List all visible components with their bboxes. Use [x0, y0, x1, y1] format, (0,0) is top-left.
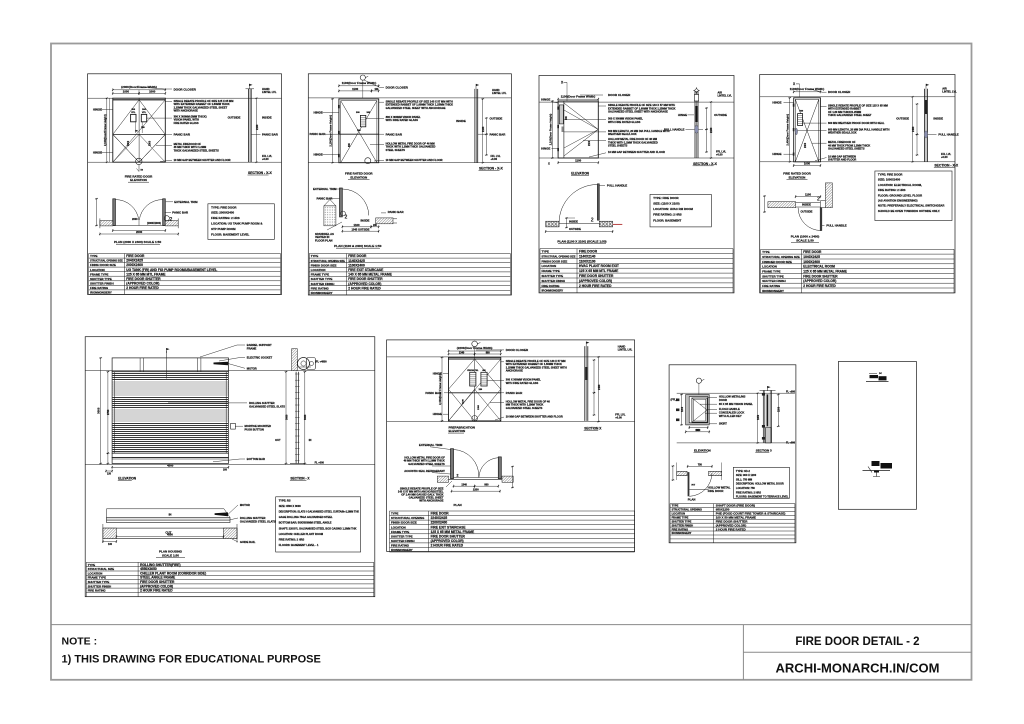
- svg-text:ANCHORAGE: ANCHORAGE: [506, 369, 523, 373]
- svg-text:3000: 3000: [97, 407, 101, 414]
- svg-text:2,400(Door Frame Height): 2,400(Door Frame Height): [438, 373, 442, 405]
- svg-text:+0.00: +0.00: [941, 155, 948, 159]
- svg-text:SECTION - X-X: SECTION - X-X: [693, 162, 717, 166]
- svg-text:FIRE RATING: 2 HRS: FIRE RATING: 2 HRS: [736, 490, 761, 494]
- svg-text:1100: 1100: [805, 193, 812, 197]
- svg-text:MOTOR: MOTOR: [240, 503, 250, 507]
- svg-text:1345 OUTSIDE: 1345 OUTSIDE: [351, 227, 369, 231]
- svg-text:1100: 1100: [463, 398, 465, 404]
- svg-text:(FL +4800: (FL +4800: [315, 360, 327, 363]
- svg-text:2040X2425: 2040X2425: [126, 259, 143, 263]
- svg-text:PUSH BUTTON: PUSH BUTTON: [245, 427, 264, 431]
- svg-text:FIRE RATING: FIRE RATING: [90, 286, 109, 290]
- svg-text:LOCATION: 750: LOCATION: 750: [736, 486, 755, 490]
- svg-text:SCALE 1:50: SCALE 1:50: [162, 553, 179, 557]
- svg-text:GALVANIZED STEEL SHEETS: GALVANIZED STEEL SHEETS: [408, 462, 445, 466]
- svg-text:NOTE :: NOTE :: [62, 636, 98, 648]
- svg-text:ELECTRIC SOCKET: ELECTRIC SOCKET: [247, 356, 273, 360]
- svg-text:SECTION X: SECTION X: [584, 427, 602, 431]
- svg-text:FRAME TYPE: FRAME TYPE: [672, 516, 689, 520]
- svg-text:10 MM GAP BETWEEN SHUTTER AND: 10 MM GAP BETWEEN SHUTTER AND FLOOR: [506, 415, 563, 419]
- svg-text:FIRE RATED GLASS: FIRE RATED GLASS: [174, 121, 199, 125]
- svg-text:ROLLING SHUTTER: ROLLING SHUTTER: [249, 401, 275, 405]
- svg-text:FINISH DOOR SIZE: FINISH DOOR SIZE: [391, 521, 417, 525]
- svg-text:IN: IN: [169, 513, 172, 517]
- svg-text:125 X 65 MM MTL FRAME: 125 X 65 MM MTL FRAME: [579, 269, 619, 273]
- svg-text:1000: 1000: [804, 162, 811, 166]
- svg-text:FIRE EXIT STAIRCASE: FIRE EXIT STAIRCASE: [431, 525, 467, 529]
- svg-text:HINGE: HINGE: [772, 101, 781, 105]
- svg-text:PANIC BAR: PANIC BAR: [490, 132, 507, 136]
- svg-text:X: X: [548, 162, 550, 166]
- svg-text:SECTION - X: SECTION - X: [290, 477, 310, 481]
- svg-text:BOTTOM BAR: 50X50X6MM STEEL AN: BOTTOM BAR: 50X50X6MM STEEL ANGLE: [279, 521, 332, 525]
- svg-text:IRONMONGERY: IRONMONGERY: [542, 289, 564, 293]
- svg-text:TYPE: FIRE DOOR: TYPE: FIRE DOOR: [878, 173, 903, 177]
- svg-text:SKIRT: SKIRT: [719, 422, 727, 426]
- svg-text:PULL HANDLE: PULL HANDLE: [607, 184, 627, 188]
- svg-text:LOCATION: UG TANK PUMP ROOM &: LOCATION: UG TANK PUMP ROOM &: [211, 222, 262, 226]
- svg-text:BARREL SUPPORT: BARREL SUPPORT: [247, 343, 272, 347]
- svg-text:600 MM WEATHER PROOF DOOR WITH: 600 MM WEATHER PROOF DOOR WITH SEAL: [828, 121, 885, 125]
- svg-text:2 HOUR FIRE RATED: 2 HOUR FIRE RATED: [431, 544, 464, 548]
- svg-text:STEEL SHEETS: STEEL SHEETS: [608, 144, 628, 148]
- svg-text:OUTSIDE: OUTSIDE: [714, 113, 727, 117]
- svg-text:PANIC BAR: PANIC BAR: [506, 391, 523, 395]
- svg-text:WITH ANCHORAGE: WITH ANCHORAGE: [419, 499, 444, 503]
- svg-text:(AS AVIATION ENGINEERING): (AS AVIATION ENGINEERING): [878, 199, 918, 203]
- svg-text:1200: 1200: [682, 406, 684, 412]
- svg-text:2 HOUR FIRE RATED: 2 HOUR FIRE RATED: [803, 284, 836, 288]
- svg-text:FIRE RATING: FIRE RATING: [762, 284, 781, 288]
- svg-text:2,100(Door/Frame Height): 2,100(Door/Frame Height): [103, 114, 107, 146]
- svg-text:SHUTTER FINISH: SHUTTER FINISH: [672, 523, 694, 527]
- svg-text:GAGE ROLLING 75GA GALVANISED S: GAGE ROLLING 75GA GALVANISED STEEL: [279, 515, 333, 519]
- svg-text:1100(Door Frame Width): 1100(Door Frame Width): [342, 81, 376, 85]
- svg-text:IRONMONGERY: IRONMONGERY: [672, 531, 692, 535]
- svg-text:2000: 2000: [136, 230, 143, 234]
- svg-text:SHUTTER TYPE: SHUTTER TYPE: [311, 277, 333, 281]
- svg-text:SHUTTER FINISH: SHUTTER FINISH: [311, 282, 335, 286]
- svg-text:1) THIS DRAWING FOR EDUCATIONA: 1) THIS DRAWING FOR EDUCATIONAL PURPOSE: [62, 654, 321, 666]
- svg-text:PANIC BAR: PANIC BAR: [386, 132, 403, 136]
- svg-text:THICK GALVANIZED STEEL SHEET: THICK GALVANIZED STEEL SHEET: [828, 113, 872, 117]
- svg-text:FIRE RATING: FIRE RATING: [672, 527, 688, 531]
- svg-text:DESCRIPTION: SLATS / GALVANISE: DESCRIPTION: SLATS / GALVANISED STEEL CU…: [279, 510, 360, 514]
- svg-text:2240X2425: 2240X2425: [431, 516, 448, 520]
- svg-text:STRUCTURAL OPENING: STRUCTURAL OPENING: [672, 508, 702, 512]
- svg-text:(APPROVED COLOR): (APPROVED COLOR): [803, 279, 836, 283]
- svg-text:ELEVATION: ELEVATION: [571, 171, 589, 175]
- svg-text:200: 200: [223, 469, 228, 472]
- svg-text:HINGE: HINGE: [678, 113, 687, 117]
- svg-text:PANIC BAR: PANIC BAR: [262, 132, 279, 136]
- svg-text:TYPE: TYPE: [311, 254, 319, 258]
- svg-text:FIRE DOOR SHUTTER: FIRE DOOR SHUTTER: [579, 274, 614, 278]
- svg-text:DOOR CLOSER: DOOR CLOSER: [386, 86, 409, 90]
- svg-text:GALVANIZED STEEL SHEET WITH AN: GALVANIZED STEEL SHEET WITH ANCHORAGE: [386, 106, 446, 110]
- svg-text:FRAME TYPE: FRAME TYPE: [391, 530, 409, 534]
- svg-text:FINISH DOOR SIZE: FINISH DOOR SIZE: [542, 259, 568, 263]
- svg-text:SIZE: 2000X2400: SIZE: 2000X2400: [211, 211, 234, 215]
- svg-text:+0.00: +0.00: [262, 157, 269, 161]
- svg-text:860: 860: [484, 483, 489, 486]
- svg-text:SECTION - X-X: SECTION - X-X: [248, 171, 272, 175]
- svg-text:INSIDE: INSIDE: [933, 117, 943, 121]
- svg-text:(1000X1000): (1000X1000): [147, 222, 161, 225]
- svg-text:1100(Door Frame Width): 1100(Door Frame Width): [790, 87, 824, 91]
- svg-text:FIRE DOOR SHUTTER: FIRE DOOR SHUTTER: [803, 274, 838, 278]
- svg-text:GALVANIZED STEEL SHEET WITH AN: GALVANIZED STEEL SHEET WITH ANCHORAGE: [608, 110, 668, 114]
- svg-text:1100: 1100: [354, 223, 361, 227]
- svg-text:GUIDE RAIL: GUIDE RAIL: [240, 540, 256, 544]
- svg-text:+0.00: +0.00: [716, 152, 723, 156]
- svg-text:VPL: VPL: [131, 112, 136, 114]
- svg-text:EXTERNAL TRIM: EXTERNAL TRIM: [419, 443, 443, 447]
- svg-text:TYPE: FIRE DOOR: TYPE: FIRE DOOR: [653, 196, 679, 200]
- svg-text:2: 2: [817, 197, 820, 203]
- svg-text:FL +000: FL +000: [315, 461, 325, 464]
- svg-text:TYPE: TYPE: [672, 504, 679, 508]
- svg-text:OUT: OUT: [275, 438, 281, 442]
- svg-text:FRAME TYPE: FRAME TYPE: [311, 273, 329, 277]
- svg-text:2000X2400: 2000X2400: [126, 263, 143, 267]
- svg-text:HVAC PLANT ROOM EXIT: HVAC PLANT ROOM EXIT: [579, 264, 619, 268]
- svg-text:ARCHI-MONARCH.IN/COM: ARCHI-MONARCH.IN/COM: [776, 661, 940, 676]
- svg-text:2,100(Door Frame Height): 2,100(Door Frame Height): [548, 114, 552, 146]
- svg-text:1100X2100: 1100X2100: [579, 259, 596, 263]
- svg-text:TYPE: TYPE: [90, 254, 98, 258]
- svg-text:2 HOUR FIRE RATED: 2 HOUR FIRE RATED: [348, 286, 381, 290]
- svg-text:CONCEALED LOCK: CONCEALED LOCK: [719, 411, 744, 415]
- svg-text:2700: 2700: [107, 409, 110, 415]
- svg-text:FIRE DOOR: FIRE DOOR: [126, 254, 145, 258]
- svg-text:PANIC BAR: PANIC BAR: [388, 210, 405, 214]
- svg-text:HINGE: HINGE: [93, 150, 102, 154]
- svg-text:SHAFT: 220GYL GALVANISED STEEL: SHAFT: 220GYL GALVANISED STEEL BOX CASIN…: [279, 526, 357, 530]
- svg-text:LOCATION: LOCATION: [762, 265, 777, 269]
- svg-text:(APPROVED COLOR): (APPROVED COLOR): [431, 539, 464, 543]
- svg-text:STEEL SHEETS: STEEL SHEETS: [386, 148, 406, 152]
- svg-text:PULL HANDLE: PULL HANDLE: [826, 224, 846, 228]
- svg-text:125 X 65 MM MTL FRAME: 125 X 65 MM MTL FRAME: [126, 272, 166, 276]
- svg-text:LINTEL LVL: LINTEL LVL: [492, 91, 507, 95]
- svg-text:2100: 2100: [482, 126, 485, 132]
- svg-text:LINTEL LVL: LINTEL LVL: [942, 90, 957, 94]
- svg-text:OUTSIDE: OUTSIDE: [801, 209, 813, 213]
- svg-text:THICK GALVANIZED STEEL SHEETS: THICK GALVANIZED STEEL SHEETS: [174, 148, 220, 152]
- svg-text:FIRE DOOR DETAIL - 2: FIRE DOOR DETAIL - 2: [795, 636, 919, 648]
- svg-text:4500: 4500: [167, 463, 174, 467]
- svg-text:WEATHER SEAL/LOCK: WEATHER SEAL/LOCK: [828, 131, 857, 135]
- svg-text:STRUCTURAL OPENING SIZE: STRUCTURAL OPENING SIZE: [542, 254, 576, 258]
- svg-text:SECTION 3: SECTION 3: [756, 449, 772, 453]
- svg-text:1340: 1340: [461, 483, 467, 486]
- svg-text:SHOULD BE OPEN TOWARDS OUTSIDE: SHOULD BE OPEN TOWARDS OUTSIDE ONLY.: [878, 209, 940, 213]
- svg-text:900: 900: [695, 429, 700, 432]
- svg-text:HINGE: HINGE: [93, 108, 102, 112]
- svg-text:1140X2425: 1140X2425: [348, 259, 365, 263]
- svg-text:(APPROVED COLOR): (APPROVED COLOR): [126, 281, 159, 285]
- svg-text:ELEVATION: ELEVATION: [694, 449, 711, 453]
- svg-text:2100: 2100: [589, 140, 591, 146]
- svg-text:FIRE RATING: 2 HRS: FIRE RATING: 2 HRS: [211, 216, 240, 220]
- svg-text:HINGE: HINGE: [433, 372, 442, 376]
- svg-text:INSIDE: INSIDE: [802, 203, 811, 207]
- svg-text:FIRE RATING: FIRE RATING: [542, 284, 561, 288]
- svg-text:ROLLING SHUTTER: ROLLING SHUTTER: [240, 516, 266, 520]
- svg-text:FIRE RATING: FIRE RATING: [391, 544, 410, 548]
- svg-text:SIZE: 4500 X 3000: SIZE: 4500 X 3000: [279, 504, 302, 508]
- svg-text:SIZE: (1100 X 2100): SIZE: (1100 X 2100): [653, 202, 679, 206]
- svg-text:PANIC BAR: PANIC BAR: [425, 391, 442, 395]
- svg-text:FIRE RATING: FIRE RATING: [311, 286, 330, 290]
- svg-text:FRAME TYPE: FRAME TYPE: [90, 272, 108, 276]
- svg-text:FIRE EXIT STAIRCASE: FIRE EXIT STAIRCASE: [348, 268, 384, 272]
- svg-text:BOTTOM BAR: BOTTOM BAR: [247, 457, 265, 461]
- svg-text:IRONMONGERY: IRONMONGERY: [311, 291, 333, 295]
- svg-text:GALVANIZED STEEL SHEETS: GALVANIZED STEEL SHEETS: [506, 406, 543, 410]
- svg-text:1000: 1000: [123, 90, 130, 94]
- svg-text:MOTOR: MOTOR: [247, 366, 257, 370]
- svg-text:INSIDE: INSIDE: [262, 116, 272, 120]
- svg-text:2: 2: [170, 217, 173, 223]
- svg-text:1140X2140: 1140X2140: [579, 254, 596, 258]
- svg-text:2: 2: [591, 217, 594, 223]
- svg-text:65 X 65 MM VISION PANEL: 65 X 65 MM VISION PANEL: [719, 402, 753, 406]
- svg-text:DOOR CLOSER: DOOR CLOSER: [608, 93, 631, 97]
- svg-text:ELEVATION: ELEVATION: [350, 175, 367, 179]
- svg-text:DOOR CLOSER: DOOR CLOSER: [174, 88, 197, 92]
- svg-text:FIRE RATING: 2 HRS: FIRE RATING: 2 HRS: [279, 538, 305, 542]
- svg-text:PULL HANDLE: PULL HANDLE: [664, 127, 684, 131]
- svg-text:HINGE: HINGE: [772, 152, 781, 156]
- svg-text:STRUCTURAL OPENING: STRUCTURAL OPENING: [391, 516, 425, 520]
- svg-text:PANIC BAR: PANIC BAR: [174, 133, 191, 137]
- svg-text:VPL: VPL: [142, 112, 147, 114]
- svg-text:1200: 1200: [779, 406, 781, 412]
- svg-text:FIRE DOOR SHUTTER: FIRE DOOR SHUTTER: [348, 277, 383, 281]
- svg-text:HINGE: HINGE: [541, 147, 550, 151]
- svg-text:FINISH DOOR SIZE: FINISH DOOR SIZE: [90, 263, 116, 267]
- svg-text:10 MM GAP BETWEEN SHUTTER AND: 10 MM GAP BETWEEN SHUTTER AND FLOOR: [174, 158, 231, 162]
- svg-text:2,400(Door Frame Height): 2,400(Door Frame Height): [786, 114, 790, 146]
- svg-text:LINTEL LVL: LINTEL LVL: [618, 348, 633, 352]
- svg-text:PLAN (1100 X 2100) (SCALE 1:50: PLAN (1100 X 2100) (SCALE 1:50): [557, 239, 606, 243]
- svg-text:ELEVATION: ELEVATION: [130, 178, 147, 182]
- svg-text:HINGE: HINGE: [433, 412, 442, 416]
- svg-text:1340: 1340: [459, 351, 465, 354]
- svg-text:FRAME TYPE: FRAME TYPE: [542, 269, 560, 273]
- svg-text:FIRE DOOR: FIRE DOOR: [708, 489, 724, 493]
- svg-text:2 HOUR FIRE RATED: 2 HOUR FIRE RATED: [126, 286, 159, 290]
- svg-text:OUTSIDE: OUTSIDE: [896, 117, 909, 121]
- svg-text:PLAN: PLAN: [454, 503, 462, 507]
- svg-text:ELEVATION: ELEVATION: [449, 429, 466, 433]
- svg-text:STRUCTURAL OPENING SIZE: STRUCTURAL OPENING SIZE: [311, 259, 345, 263]
- svg-text:SECTION - X-X: SECTION - X-X: [479, 167, 503, 171]
- svg-text:FL +000: FL +000: [786, 442, 796, 445]
- svg-text:LOCATION: LOCATION: [672, 512, 685, 516]
- svg-text:FRAME: FRAME: [247, 346, 257, 350]
- svg-text:DESCRIPTION: HOLLOW METAL DOOR: DESCRIPTION: HOLLOW METAL DOOR: [736, 482, 784, 486]
- svg-text:STRUCTURAL OPENING SIZE: STRUCTURAL OPENING SIZE: [762, 255, 800, 259]
- svg-text:125 X 65 MM METAL FRAME: 125 X 65 MM METAL FRAME: [431, 530, 475, 534]
- svg-text:FLOORS: BASEMENT LEVEL - 1: FLOORS: BASEMENT LEVEL - 1: [279, 543, 319, 547]
- svg-text:UG TANK (FIR) AND FIG PUMP ROO: UG TANK (FIR) AND FIG PUMP ROOMS/BASEMEN…: [126, 268, 217, 272]
- svg-text:1000: 1000: [149, 90, 156, 94]
- svg-text:2400: 2400: [804, 142, 807, 148]
- svg-text:10 MM GAP BETWEEN SHUTTER AND: 10 MM GAP BETWEEN SHUTTER AND FLOOR: [608, 150, 665, 154]
- svg-text:10 MM GAP BETWEEN SHUTTER AND: 10 MM GAP BETWEEN SHUTTER AND FLOOR: [386, 158, 443, 162]
- svg-text:IRONMONGERY: IRONMONGERY: [90, 291, 112, 295]
- svg-text:3000: 3000: [285, 414, 288, 420]
- svg-text:1100X2400: 1100X2400: [348, 263, 365, 267]
- svg-text:FINISH DOOR SIZE: FINISH DOOR SIZE: [311, 263, 337, 267]
- svg-text:HOLLOW METAL/MS: HOLLOW METAL/MS: [719, 395, 746, 399]
- svg-text:+0.00: +0.00: [491, 157, 498, 161]
- svg-text:FRAME TYPE: FRAME TYPE: [762, 270, 780, 274]
- svg-text:WITH FIRE RATED GLASS: WITH FIRE RATED GLASS: [386, 118, 419, 122]
- svg-text:SECTION - X-X: SECTION - X-X: [934, 164, 958, 168]
- svg-text:FIRE DOOR SHUTTER: FIRE DOOR SHUTTER: [126, 277, 161, 281]
- svg-text:LOCATION: CHILLER PLANT ROOM: LOCATION: CHILLER PLANT ROOM: [279, 532, 323, 536]
- svg-text:FLUSH HANDLE: FLUSH HANDLE: [719, 407, 740, 411]
- svg-text:PLAN (2000 X 2400) SCALE 1:50: PLAN (2000 X 2400) SCALE 1:50: [114, 240, 162, 244]
- svg-text:TYPE: SD-2: TYPE: SD-2: [736, 469, 751, 473]
- svg-text:TYPE: TYPE: [762, 250, 770, 254]
- svg-text:ELEVATION: ELEVATION: [118, 477, 136, 481]
- svg-text:LOCATION: LOCATION: [311, 268, 326, 272]
- svg-text:LOCATION: LOCATION: [391, 525, 406, 529]
- svg-text:GALVANISED STEEL SLATS: GALVANISED STEEL SLATS: [249, 404, 285, 408]
- svg-text:1000X2400: 1000X2400: [803, 260, 820, 264]
- svg-text:1100: 1100: [575, 159, 582, 163]
- svg-text:ELEVATION: ELEVATION: [789, 175, 806, 179]
- svg-text:NOTE: PREFERABLY ELECTRICAL: NOTE: PREFERABLY ELECTRICAL SWITCHGEAR: [878, 204, 944, 208]
- svg-text:VISION PNL: VISION PNL: [467, 370, 479, 372]
- svg-text:FIRE DOOR SHUTTER: FIRE DOOR SHUTTER: [431, 534, 466, 538]
- svg-text:OUTSIDE: OUTSIDE: [569, 227, 581, 231]
- svg-text:MORTISE MOUNTED: MORTISE MOUNTED: [245, 424, 272, 428]
- svg-text:SHUTTER TYPE: SHUTTER TYPE: [391, 534, 413, 538]
- svg-text:SHUTTER AND FLOOR: SHUTTER AND FLOOR: [828, 158, 856, 162]
- svg-text:HINGE: HINGE: [314, 110, 323, 114]
- svg-text:LOCATION: LOCATION: [90, 268, 105, 272]
- svg-text:WITH FIRE RATED GLASS: WITH FIRE RATED GLASS: [608, 120, 641, 124]
- svg-text:EXTERNAL TRIM: EXTERNAL TRIM: [313, 187, 337, 191]
- svg-text:HINGE: HINGE: [314, 153, 323, 157]
- svg-text:100: 100: [108, 543, 113, 546]
- svg-text:2400: 2400: [912, 126, 915, 132]
- svg-text:STRUCTURAL OPENING SIZE: STRUCTURAL OPENING SIZE: [90, 259, 123, 263]
- svg-text:LINTEL LVL: LINTEL LVL: [262, 90, 277, 94]
- svg-text:LOCATION: LOCATION: [542, 264, 557, 268]
- svg-text:1000: 1000: [128, 140, 130, 146]
- svg-text:SHUTTER TYPE: SHUTTER TYPE: [672, 519, 692, 523]
- svg-text:1040X2425: 1040X2425: [803, 255, 820, 259]
- svg-text:SHUTTER TYPE: SHUTTER TYPE: [762, 274, 784, 278]
- svg-text:DOOR: DOOR: [719, 398, 727, 402]
- svg-text:140 X 65 MM METAL FRAME: 140 X 65 MM METAL FRAME: [348, 273, 392, 277]
- svg-text:PLAN (1100 & 2400) SCALE 1:50: PLAN (1100 & 2400) SCALE 1:50: [334, 244, 382, 248]
- svg-text:LOCATION: HVAC RM ROOM: LOCATION: HVAC RM ROOM: [653, 207, 693, 211]
- svg-text:WEATHER SEAL/LOCK: WEATHER SEAL/LOCK: [608, 132, 637, 136]
- svg-text:(FFL): (FFL): [671, 398, 677, 401]
- svg-text:2: 2: [345, 215, 348, 221]
- svg-text:TYPE: TYPE: [391, 512, 399, 516]
- svg-text:ELECTRICAL ROOM: ELECTRICAL ROOM: [803, 265, 835, 269]
- svg-text:FIRE DOOR: FIRE DOOR: [579, 250, 598, 254]
- svg-text:+0.00: +0.00: [615, 416, 622, 420]
- svg-text:IRONMONGERY: IRONMONGERY: [391, 548, 413, 552]
- svg-text:125 X 65 MM METAL FRAME: 125 X 65 MM METAL FRAME: [803, 270, 847, 274]
- svg-text:(APPROVED COLOR): (APPROVED COLOR): [579, 279, 612, 283]
- svg-text:2100: 2100: [256, 124, 259, 130]
- svg-text:GALVANIZED STEEL SHEETS: GALVANIZED STEEL SHEETS: [828, 147, 865, 151]
- svg-text:STP PUMP ROOM: STP PUMP ROOM: [211, 227, 236, 231]
- svg-text:FLOOR: GROUND LEVEL FLOOR: FLOOR: GROUND LEVEL FLOOR: [878, 193, 922, 197]
- svg-text:FLOOR PLAN: FLOOR PLAN: [315, 238, 333, 242]
- svg-text:2 HOUR FIRE RATED: 2 HOUR FIRE RATED: [140, 589, 173, 593]
- svg-text:DOOR CLOSER: DOOR CLOSER: [506, 348, 529, 352]
- svg-text:SIZE: 900 X 1200: SIZE: 900 X 1200: [736, 473, 757, 477]
- svg-text:IRONMONGERY: IRONMONGERY: [762, 289, 784, 293]
- svg-text:OUTSIDE: OUTSIDE: [490, 117, 503, 121]
- svg-text:FL +900: FL +900: [786, 391, 796, 394]
- svg-text:TYPE: TYPE: [542, 250, 550, 254]
- svg-text:(2200(Door Frame Width): (2200(Door Frame Width): [457, 346, 493, 350]
- svg-text:2200X2400: 2200X2400: [431, 521, 448, 525]
- svg-text:FIRE DOOR: FIRE DOOR: [803, 250, 822, 254]
- svg-text:2 HOUR FIRE RATED: 2 HOUR FIRE RATED: [716, 527, 747, 531]
- svg-text:PULL HANDLE: PULL HANDLE: [938, 132, 958, 136]
- svg-text:HINGE: HINGE: [541, 98, 550, 102]
- svg-text:INSIDE: INSIDE: [456, 119, 466, 123]
- svg-text:1100: 1100: [352, 87, 359, 91]
- svg-text:FIRE DOOR: FIRE DOOR: [431, 512, 450, 516]
- svg-text:PLAN: PLAN: [688, 498, 696, 502]
- svg-text:4500: 4500: [167, 533, 173, 537]
- svg-text:SHUTTER TYPE: SHUTTER TYPE: [90, 277, 112, 281]
- svg-text:SHUTTER FINISH: SHUTTER FINISH: [90, 281, 114, 285]
- svg-text:WITH FIRE RATED GLASS: WITH FIRE RATED GLASS: [506, 381, 539, 385]
- svg-text:860: 860: [486, 351, 491, 354]
- svg-text:1950: 1950: [758, 414, 760, 420]
- svg-text:FIRE RATING: 2 HRS: FIRE RATING: 2 HRS: [878, 188, 906, 192]
- svg-text:LOCATION: ELECTRICAL ROOM,: LOCATION: ELECTRICAL ROOM,: [878, 183, 922, 187]
- svg-text:TYPE: FIRE DOOR: TYPE: FIRE DOOR: [211, 205, 237, 209]
- svg-text:WITH ANCHORAGE: WITH ANCHORAGE: [174, 109, 199, 113]
- svg-text:2000: 2000: [132, 218, 138, 221]
- svg-text:1000: 1000: [150, 140, 152, 146]
- svg-text:DOOR CLOSER: DOOR CLOSER: [828, 90, 851, 94]
- svg-text:2200: 2200: [473, 487, 479, 491]
- svg-text:FLOOR: BASEMENT: FLOOR: BASEMENT: [653, 218, 681, 222]
- svg-text:SHUTTER FINISH: SHUTTER FINISH: [391, 539, 415, 543]
- svg-text:SIZE: 1000X2400: SIZE: 1000X2400: [878, 178, 901, 182]
- svg-text:FIRE DOOR: FIRE DOOR: [348, 254, 367, 258]
- svg-text:ACOUSTIC SEAL REFRIGERANT: ACOUSTIC SEAL REFRIGERANT: [404, 469, 445, 473]
- svg-text:150: 150: [107, 473, 112, 476]
- svg-text:2100: 2100: [710, 127, 713, 133]
- svg-text:FLOOR: BASEMENT LEVEL: FLOOR: BASEMENT LEVEL: [211, 232, 249, 236]
- svg-text:3000: 3000: [304, 414, 307, 420]
- svg-text:(2000(Door/Frame Width): (2000(Door/Frame Width): [121, 85, 157, 89]
- svg-text:EXTERNAL TRIM: EXTERNAL TRIM: [174, 200, 198, 204]
- svg-text:2: 2: [457, 474, 459, 478]
- svg-text:FIRE RATING: FIRE RATING: [88, 589, 107, 593]
